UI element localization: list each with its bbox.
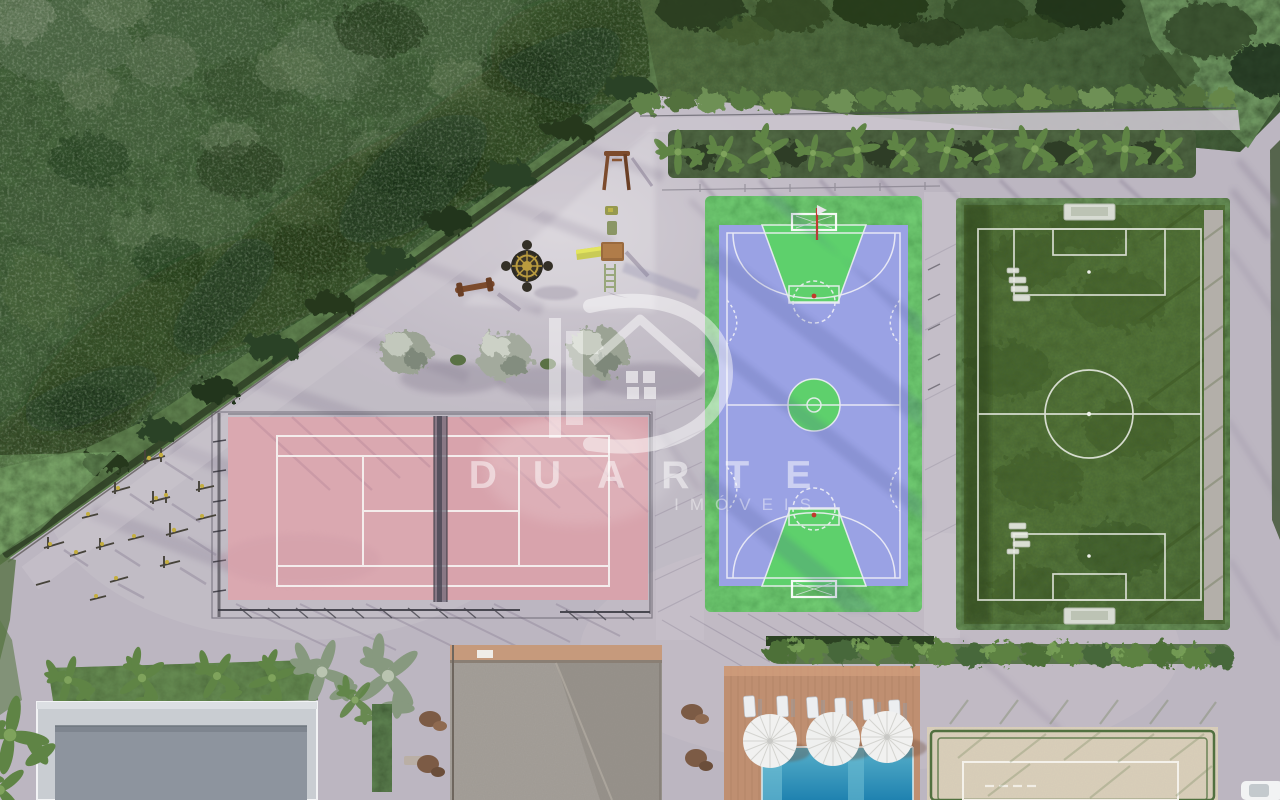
svg-text:DUARTE: DUARTE (469, 454, 848, 497)
svg-text:IMÓVEIS: IMÓVEIS (674, 495, 822, 514)
